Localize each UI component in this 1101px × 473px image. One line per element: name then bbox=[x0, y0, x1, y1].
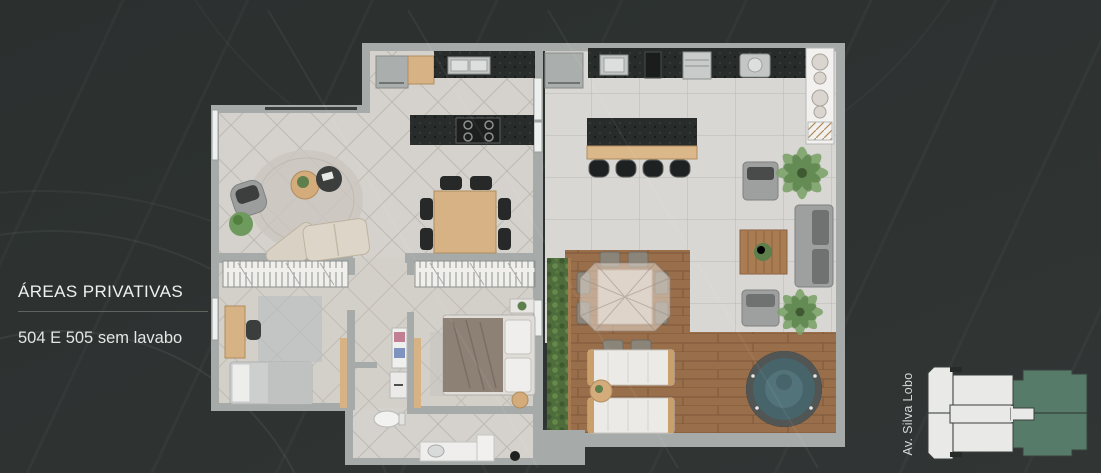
island-counter bbox=[587, 118, 697, 146]
cabinet bbox=[408, 56, 434, 84]
grill-station bbox=[806, 48, 834, 144]
desk-chair bbox=[246, 320, 261, 340]
hot-tub bbox=[746, 351, 822, 427]
wardrobe bbox=[415, 261, 535, 287]
rug bbox=[258, 296, 322, 362]
shower bbox=[477, 435, 494, 461]
armchair-2 bbox=[742, 290, 779, 326]
dresser bbox=[340, 338, 347, 408]
coffee-table bbox=[740, 230, 787, 274]
hedge bbox=[547, 258, 568, 443]
armchair bbox=[743, 162, 778, 200]
stool bbox=[510, 451, 520, 461]
bedroom-2 bbox=[414, 261, 535, 408]
single-bed bbox=[230, 362, 312, 404]
round-stool bbox=[512, 392, 528, 408]
sun-lounger bbox=[588, 398, 674, 433]
street-label: Av. Silva Lobo bbox=[901, 362, 917, 466]
title-divider bbox=[18, 311, 208, 312]
parasol-canopy bbox=[580, 263, 670, 331]
sliding-door-track bbox=[265, 107, 357, 110]
floorplan-marketing-slide: { "page": { "background": "#2e3332" }, "… bbox=[0, 0, 1101, 473]
wardrobe bbox=[223, 261, 348, 287]
floorplan-render bbox=[208, 10, 858, 468]
sofa bbox=[795, 205, 833, 287]
building-keyplan bbox=[926, 362, 1090, 462]
info-panel: ÁREAS PRIVATIVAS 504 E 505 sem lavabo bbox=[18, 282, 238, 348]
keyplan-corridor bbox=[950, 405, 1034, 423]
dining-table bbox=[434, 191, 496, 253]
unit-subtitle: 504 E 505 sem lavabo bbox=[18, 329, 238, 348]
dresser bbox=[414, 338, 421, 408]
toilet bbox=[374, 411, 405, 427]
page-title: ÁREAS PRIVATIVAS bbox=[18, 282, 238, 302]
desk bbox=[225, 306, 245, 358]
island-base bbox=[587, 146, 697, 159]
